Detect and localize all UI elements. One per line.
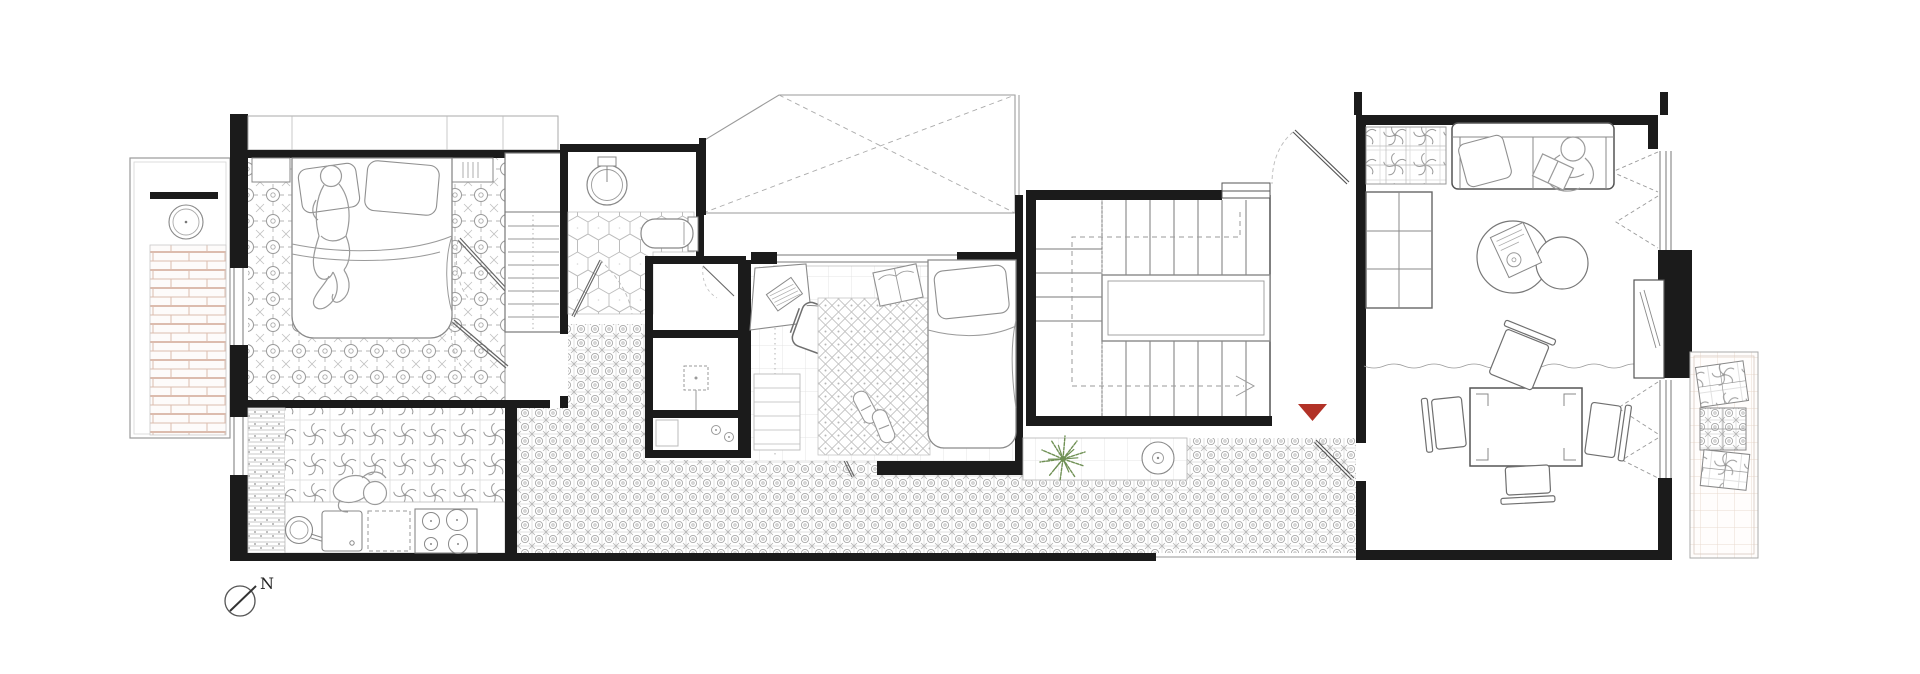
courtyard <box>1023 436 1187 481</box>
living-dining-room <box>1354 92 1692 560</box>
utility-rooms <box>645 256 746 458</box>
balcony-wall <box>150 192 218 199</box>
entry-door <box>1272 130 1349 184</box>
dining-table <box>1470 388 1582 466</box>
sliding-door <box>1222 183 1270 198</box>
radiator <box>754 374 800 450</box>
round-balcony-table <box>169 205 203 239</box>
wall-shelving <box>1366 192 1432 308</box>
toilet <box>641 217 698 251</box>
facade-wall-left <box>230 114 248 557</box>
street-balcony <box>130 158 230 438</box>
door <box>703 266 734 298</box>
shower-drain <box>684 366 708 410</box>
brick-paving <box>150 245 226 435</box>
wardrobe <box>505 153 562 332</box>
patio-table <box>1142 442 1174 474</box>
bedside-cabinet <box>252 158 290 182</box>
floor-plan-sheet: N <box>0 0 1920 674</box>
tile-samples <box>1695 361 1749 490</box>
section-mark <box>1354 92 1362 115</box>
skylight-void <box>699 95 1015 215</box>
gallery-band <box>248 116 558 150</box>
kitchen-sink <box>322 511 362 551</box>
appliance <box>656 420 734 446</box>
runner-tiles <box>248 408 285 553</box>
north-arrow: N <box>225 574 274 616</box>
bathroom <box>560 144 706 320</box>
staircase <box>1026 183 1272 426</box>
sideboard <box>1634 280 1664 378</box>
stair-void <box>1102 275 1270 341</box>
entrance-marker <box>1298 404 1327 421</box>
south-wall <box>230 553 1156 561</box>
pillow <box>933 264 1010 319</box>
north-label: N <box>260 574 274 593</box>
entry-vestibule <box>1272 130 1354 480</box>
single-bed <box>928 260 1016 448</box>
rear-balcony <box>1690 352 1758 558</box>
cooktop <box>415 509 477 554</box>
sofa <box>1452 123 1614 189</box>
section-mark <box>1660 92 1668 115</box>
rug <box>818 298 930 455</box>
washbasin <box>587 157 627 205</box>
pillow <box>364 160 440 216</box>
tiled-floor <box>285 408 505 502</box>
